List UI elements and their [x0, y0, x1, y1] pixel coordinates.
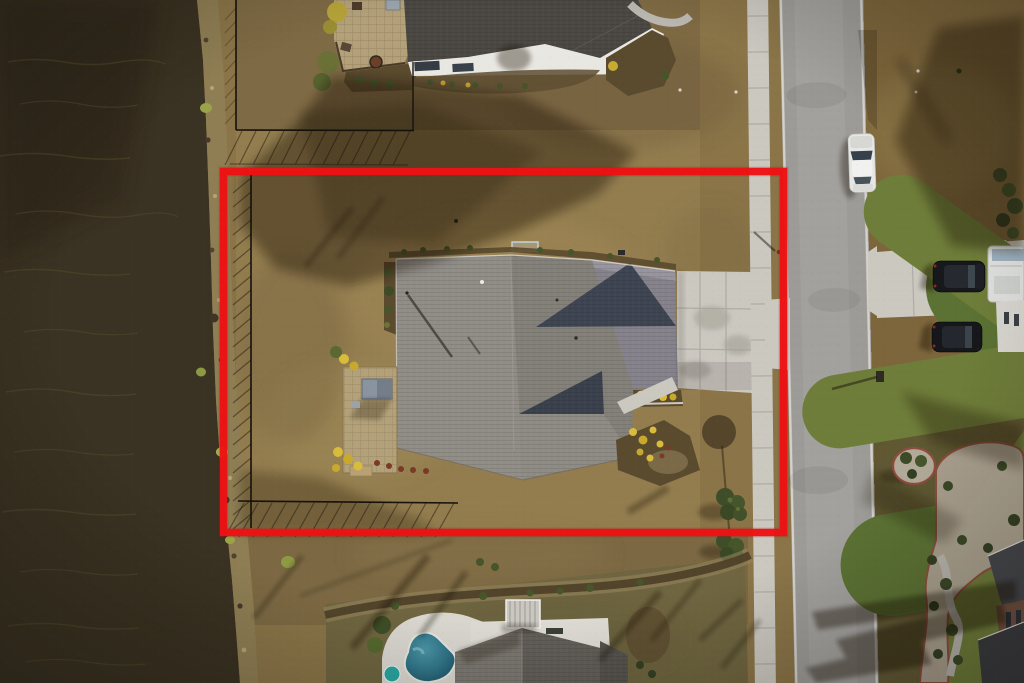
- vignette: [0, 0, 1024, 683]
- aerial-photo-canvas: [0, 0, 1024, 683]
- aerial-photo: [0, 0, 1024, 683]
